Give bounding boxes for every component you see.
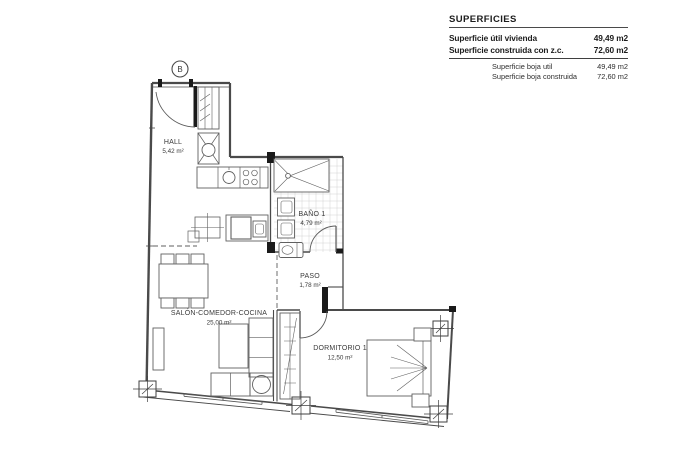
room-label-hall: HALL 5,42 m² (162, 139, 183, 155)
superficies-table: SUPERFICIES Superficie útil vivienda 49,… (449, 14, 628, 82)
corner-jamb (449, 306, 456, 312)
bed (367, 340, 431, 396)
column-bottom-middle (286, 391, 316, 420)
kitchen-island (226, 215, 268, 241)
toilet (279, 243, 303, 258)
sideboard (153, 328, 164, 370)
bano-name: BAÑO 1 (299, 209, 326, 218)
salon-area: 25,00 m² (207, 320, 232, 327)
columns (133, 315, 454, 428)
surface-label: Superficie boja construida (492, 72, 577, 82)
surface-label: Superficie boja util (492, 62, 552, 72)
floorplan-page: B HALL 5,42 m² BAÑO 1 4,79 m² PASO 1,78 … (0, 0, 700, 456)
surface-row-util: Superficie útil vivienda 49,49 m2 (449, 32, 628, 44)
bedroom-door-arc (300, 311, 327, 338)
dormitorio-name: DORMITORIO 1 (313, 345, 367, 352)
bano-area: 4,79 m² (300, 220, 321, 227)
paso-area: 1,78 m² (299, 282, 320, 289)
kitchen-counter (197, 167, 268, 188)
section-marker: B (172, 61, 188, 77)
table-rule-top (449, 27, 628, 28)
kitchen-jamb-bottom (267, 242, 275, 253)
bath-door-jamb (336, 249, 343, 254)
table-title: SUPERFICIES (449, 14, 628, 25)
room-label-bano: BAÑO 1 4,79 m² (299, 209, 326, 227)
nightstand-top (414, 328, 431, 341)
surface-subrow-construida: Superficie boja construida 72,60 m2 (449, 72, 628, 82)
washbasins (278, 198, 295, 238)
surface-row-construida: Superficie construida con z.c. 72,60 m2 (449, 44, 628, 56)
side-table (253, 376, 271, 394)
dining-set (159, 254, 208, 308)
room-label-dormitorio: DORMITORIO 1 12,50 m² (313, 345, 367, 362)
room-label-salon: SALÓN-COMEDOR-COCINA 25,00 m² (171, 308, 267, 327)
surface-label: Superficie construida con z.c. (449, 44, 564, 56)
surface-subrow-util: Superficie boja util 49,49 m2 (449, 62, 628, 72)
paso-name: PASO (300, 273, 320, 280)
table-rule-mid (449, 58, 628, 59)
hall-closet (198, 87, 219, 129)
shower (274, 159, 329, 192)
nightstand-bottom (412, 394, 429, 407)
coffee-table (219, 324, 248, 368)
hall-area: 5,42 m² (162, 148, 183, 155)
surface-value: 49,49 m2 (594, 32, 628, 44)
bedroom-jamb (322, 287, 328, 313)
kitchen-table (188, 213, 224, 242)
sofa (211, 318, 273, 396)
dining-table (159, 264, 208, 298)
entry-jamb-left (158, 79, 162, 87)
surface-value: 72,60 m2 (597, 72, 628, 82)
salon-name: SALÓN-COMEDOR-COCINA (171, 308, 267, 317)
surface-label: Superficie útil vivienda (449, 32, 537, 44)
surface-value: 72,60 m2 (594, 44, 628, 56)
shaft-box (198, 133, 219, 164)
surface-value: 49,49 m2 (597, 62, 628, 72)
entry-door-leaf (194, 86, 198, 127)
entry-door-arc (156, 92, 195, 127)
kitchen-hob (243, 170, 257, 185)
marker-letter: B (177, 65, 182, 74)
bedroom-wardrobe (280, 313, 300, 399)
entry-jamb-right (189, 79, 193, 87)
kitchen-sink (223, 172, 235, 184)
room-label-paso: PASO 1,78 m² (299, 273, 320, 289)
hall-name: HALL (164, 139, 182, 146)
dormitorio-area: 12,50 m² (328, 355, 353, 362)
